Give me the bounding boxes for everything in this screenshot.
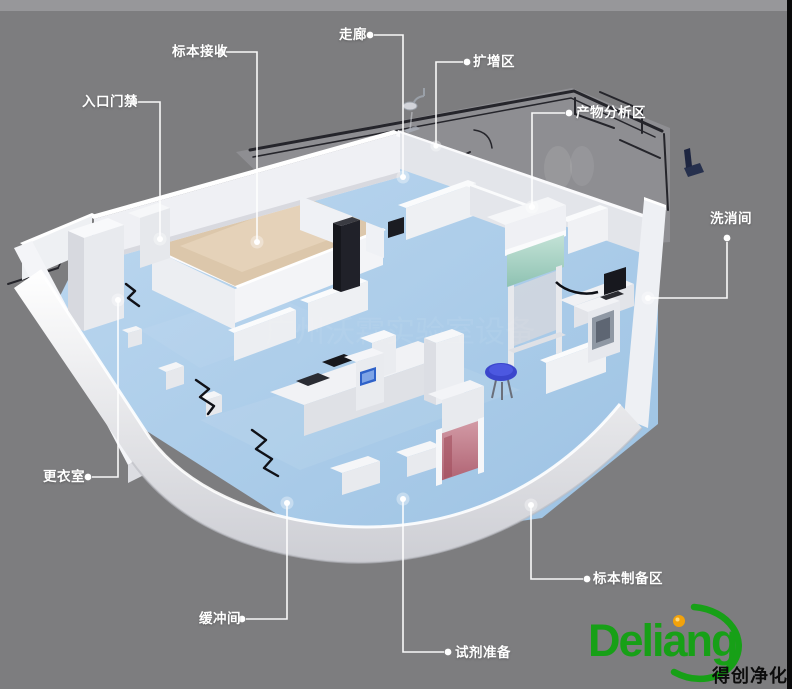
label-product-analysis-area: 产物分析区 xyxy=(576,106,646,120)
label-entrance-access: 入口门禁 xyxy=(82,95,138,109)
floor-plan-infographic: 广州沃霖实验室设备 xyxy=(0,0,792,689)
label-washing-room: 洗消间 xyxy=(710,212,752,226)
top-light-band xyxy=(0,0,792,11)
right-edge-strip xyxy=(787,0,792,689)
label-reagent-preparation: 试剂准备 xyxy=(455,646,511,660)
watermark-text: 广州沃霖实验室设备 xyxy=(265,316,535,349)
label-buffer-room: 缓冲间 xyxy=(199,612,241,626)
logo-dot-icon xyxy=(673,615,685,627)
logo-brand-text: Deliang xyxy=(588,615,737,666)
label-specimen-reception: 标本接收 xyxy=(172,45,228,59)
label-specimen-preparation-area: 标本制备区 xyxy=(593,572,663,586)
label-corridor: 走廊 xyxy=(339,28,367,42)
logo-tagline: 得创净化 xyxy=(711,665,788,686)
deliang-logo-svg: Deliang 得创净化 xyxy=(586,596,792,689)
label-amplification-area: 扩增区 xyxy=(473,55,515,69)
deliang-logo: Deliang 得创净化 xyxy=(586,596,792,689)
tall-dark-cabinet xyxy=(333,217,360,292)
label-changing-room: 更衣室 xyxy=(43,470,85,484)
